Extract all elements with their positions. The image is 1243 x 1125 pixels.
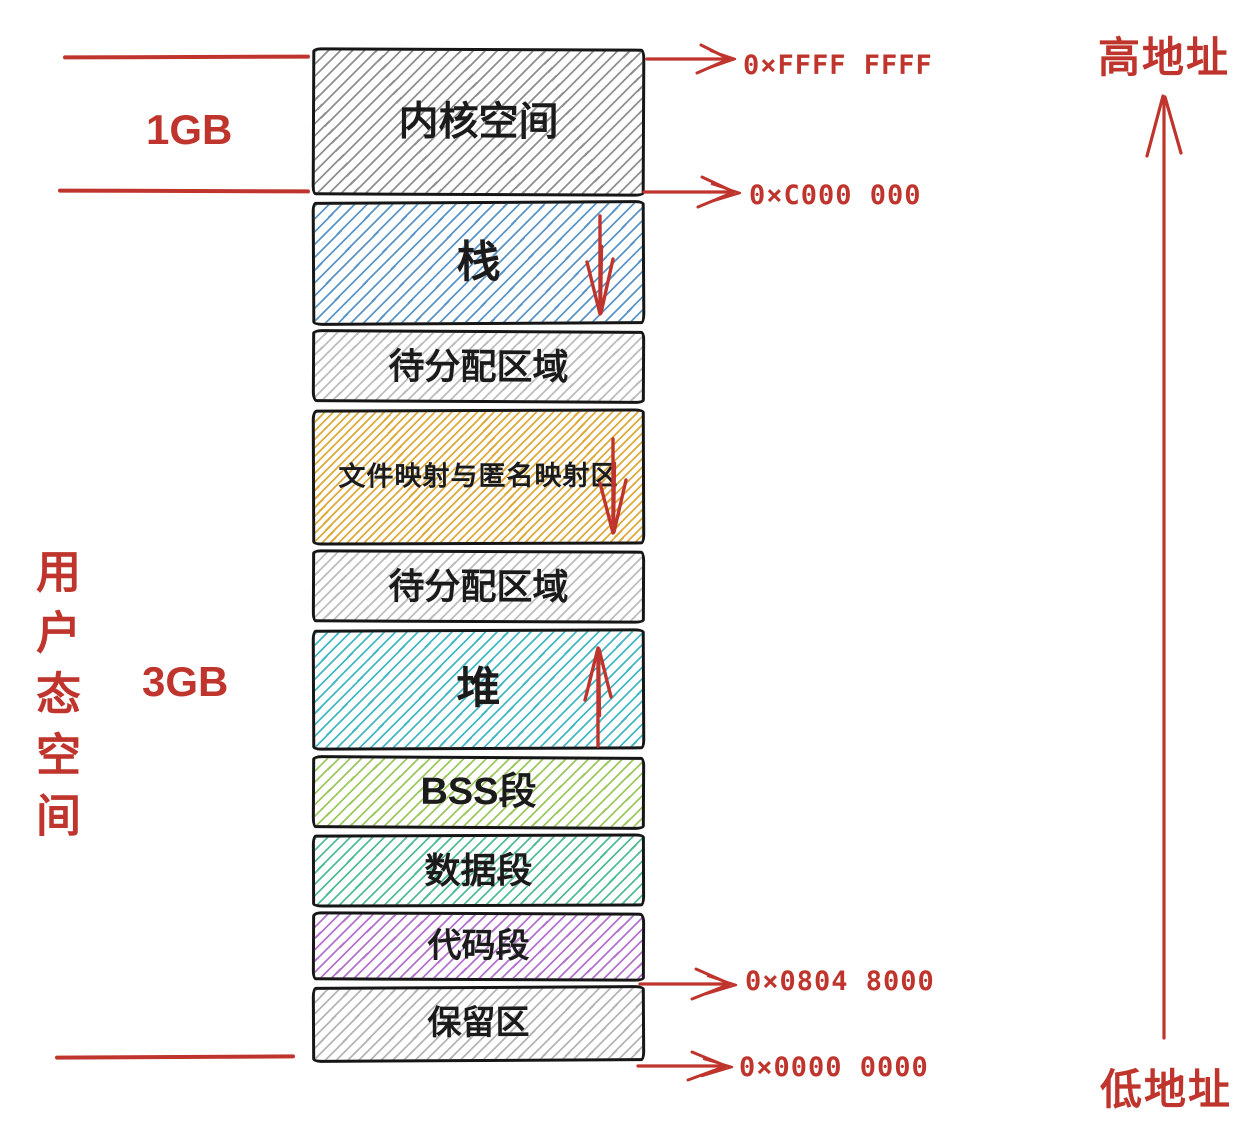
address-kernel-base: 0×C000 000 xyxy=(749,180,922,211)
mmap-region-label: 文件映射与匿名映射区 xyxy=(338,462,618,493)
data-segment-label: 数据段 xyxy=(424,851,532,891)
kernel-bottom-boundary-line xyxy=(58,189,310,194)
user-size-label: 3GB xyxy=(142,658,228,706)
addr-zero-pointer-arrow-icon xyxy=(636,1046,738,1086)
memory-block-unallocated-1: 待分配区域 xyxy=(312,329,645,404)
addr-code-base-pointer-arrow-icon xyxy=(638,964,742,1004)
memory-block-reserved-area: 保留区 xyxy=(312,985,645,1063)
memory-block-unallocated-2: 待分配区域 xyxy=(312,549,645,623)
address-axis-up-arrow-icon xyxy=(1138,88,1190,1044)
kernel-top-boundary-line xyxy=(63,55,310,60)
heap-grow-up-arrow-icon xyxy=(578,640,618,750)
unallocated-2-label: 待分配区域 xyxy=(388,566,568,606)
code-segment-label: 代码段 xyxy=(427,928,529,966)
memory-block-data-segment: 数据段 xyxy=(312,833,645,907)
memory-block-bss-segment: BSS段 xyxy=(312,755,645,830)
address-code-base: 0×0804 8000 xyxy=(745,966,935,997)
stack-grow-down-arrow-icon xyxy=(580,212,620,324)
unallocated-1-label: 待分配区域 xyxy=(388,346,568,387)
address-top: 0×FFFF FFFF xyxy=(743,50,933,81)
high-address-label: 高地址 xyxy=(1098,24,1230,85)
mmap-grow-down-arrow-icon xyxy=(592,435,634,541)
addr-kernel-base-pointer-arrow-icon xyxy=(642,172,746,212)
stack-label: 栈 xyxy=(456,239,500,288)
addr-top-pointer-arrow-icon xyxy=(645,41,741,77)
virtual-memory-layout-diagram: 内核空间 栈 待分配区域 文件映射与匿名映射区 待分配区域 堆 BSS段 数据段… xyxy=(0,0,1243,1125)
kernel-space-label: 内核空间 xyxy=(398,100,558,145)
kernel-size-label: 1GB xyxy=(146,106,232,154)
heap-label: 堆 xyxy=(456,665,500,714)
low-address-label: 低地址 xyxy=(1100,1056,1232,1117)
zero-boundary-line xyxy=(55,1054,295,1059)
address-zero: 0×0000 0000 xyxy=(739,1052,929,1083)
reserved-area-label: 保留区 xyxy=(427,1005,529,1043)
memory-block-code-segment: 代码段 xyxy=(312,911,645,981)
memory-block-kernel-space: 内核空间 xyxy=(312,47,646,196)
bss-segment-label: BSS段 xyxy=(420,771,536,813)
user-space-vertical-label: 用户态空间 xyxy=(22,548,87,853)
